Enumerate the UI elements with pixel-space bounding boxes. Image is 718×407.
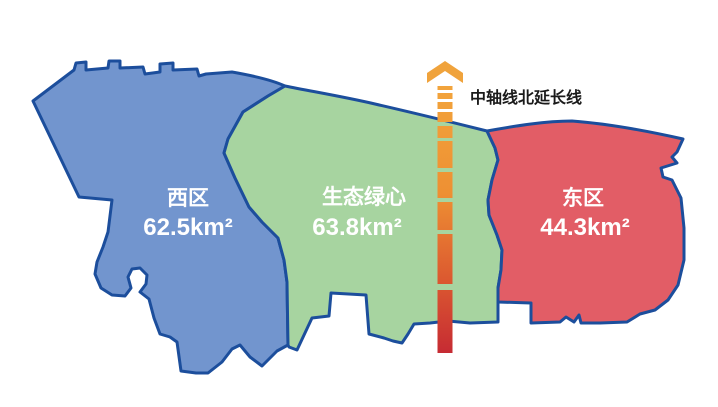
axis-label: 中轴线北延长线 [470,88,582,107]
axis-dash [438,172,453,198]
map-svg: 中轴线北延长线 西区 62.5km² 生态绿心 63.8km² 东区 44.3k… [0,0,718,407]
axis-dash [438,290,453,353]
east-district-name: 东区 [562,186,604,210]
axis-dash [438,141,453,168]
north-arrow-icon [427,61,463,83]
west-district-area: 62.5km² [143,214,232,241]
axis-dash [438,112,453,122]
axis-dash [438,126,453,138]
district-map: 中轴线北延长线 西区 62.5km² 生态绿心 63.8km² 东区 44.3k… [0,0,718,407]
axis-dash [438,86,453,90]
axis-dash [438,93,453,99]
axis-dash [438,234,453,284]
east-district-area: 44.3km² [540,214,629,241]
axis-dash [438,102,453,109]
green-heart-name: 生态绿心 [322,185,406,209]
axis-dash [438,202,453,230]
central-axis-line [438,86,453,353]
west-district-name: 西区 [167,187,209,210]
green-heart-area: 63.8km² [312,214,401,241]
